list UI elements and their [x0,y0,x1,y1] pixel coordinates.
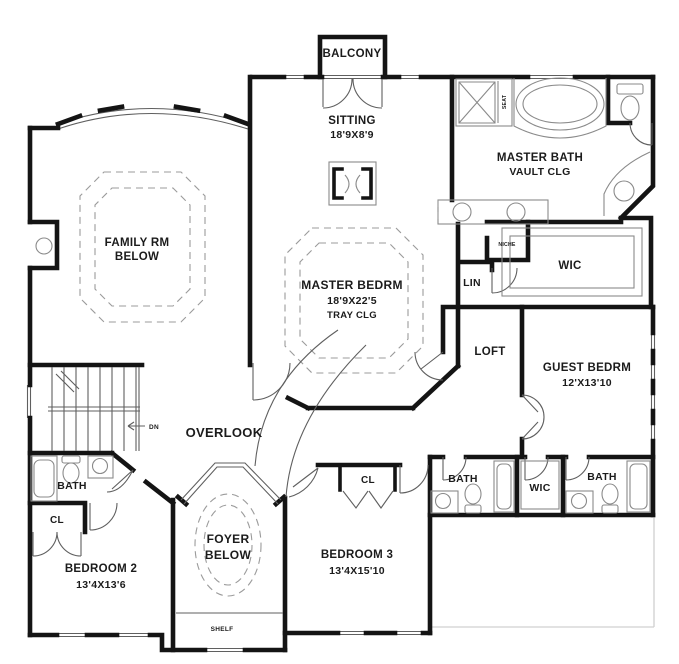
bow-window-glass [58,109,248,130]
label-bedroom3-dims: 13'4X15'10 [329,565,385,577]
bath-left-fixtures [31,456,113,501]
label-bath-left: BATH [57,480,87,492]
label-master-bedroom: MASTER BEDRM [301,278,403,292]
stair-rail [48,407,140,411]
label-lin: LIN [463,277,481,289]
label-guest-bath: BATH [587,471,617,483]
label-bedroom3: BEDROOM 3 [321,549,393,561]
master-toilet [617,84,643,120]
label-master-bedroom-dims: 18'9X22'5 [327,295,377,307]
balcony-french-doors [323,79,382,108]
label-bedroom2-dims: 13'4X13'6 [76,579,126,591]
window [205,649,245,652]
label-family-room: FAMILY RM [105,237,170,249]
label-master-bath: MASTER BATH [497,152,583,164]
labels: BALCONY SITTING 18'9X8'9 MASTER BATH VAU… [50,48,631,633]
right-exterior-wall [621,77,653,307]
label-hall-wic: WIC [529,482,550,494]
label-guest-bedroom: GUEST BEDRM [543,362,631,374]
stair-treads [52,367,139,451]
bedroom3-entry-door [289,468,318,497]
label-bedroom3-closet: CL [361,475,375,486]
loft-door [415,352,443,380]
master-toilet-door [630,123,652,145]
label-overlook: OVERLOOK [186,425,263,440]
label-master-wic: WIC [558,260,581,272]
window [399,76,421,79]
chimney-circle [36,238,52,254]
window [284,76,306,79]
label-sitting-dims: 18'9X8'9 [330,129,374,141]
label-stairs-dn: DN [149,424,159,431]
bedroom2-door [90,503,117,530]
stairs [48,367,145,451]
bedroom3-hall-door [400,465,428,493]
guest-double-doors [522,395,544,439]
label-sitting: SITTING [328,115,375,127]
bow-window-mullions [30,107,248,128]
label-closet-left: CL [50,515,64,526]
label-loft: LOFT [474,346,505,358]
label-family-room-note: BELOW [115,251,159,263]
chimney-box [30,222,57,268]
floor-plan-page: BALCONY SITTING 18'9X8'9 MASTER BATH VAU… [0,0,679,664]
master-bedroom-south-walls [288,366,458,408]
overlook-railing [255,330,366,497]
label-master-bath-ceiling: VAULT CLG [509,166,570,178]
balcony-door-threshold [322,76,383,79]
closet-left-doors [33,532,81,556]
bottom-exterior-wall [30,635,285,650]
label-foyer-note: BELOW [205,548,252,562]
foyer-bay-railing [181,463,281,504]
label-guest-bedroom-dims: 12'X13'10 [562,377,612,389]
label-foyer: FOYER [207,532,250,546]
master-tub [514,78,606,138]
bedroom3-closet-bifold-doors [343,491,393,508]
label-bedroom2: BEDROOM 2 [65,563,137,575]
label-balcony: BALCONY [323,48,382,60]
guest-bath-fixtures [566,461,650,513]
fireplace-two-sided [329,162,376,205]
lin-door [492,268,517,293]
label-master-bedroom-ceiling: TRAY CLG [327,310,377,321]
label-shower-seat: SEAT [502,94,508,109]
foyer-bay-posts [178,497,284,504]
window [28,385,31,418]
guest-bath-door [566,457,589,480]
label-niche: NICHE [498,242,515,248]
label-hall-bath: BATH [448,473,478,485]
label-shelf: SHELF [211,626,234,633]
master-vanity-corner [604,152,650,216]
page-frame [432,518,654,627]
floor-plan-drawing: BALCONY SITTING 18'9X8'9 MASTER BATH VAU… [0,0,679,664]
bath-left-door [107,470,133,492]
